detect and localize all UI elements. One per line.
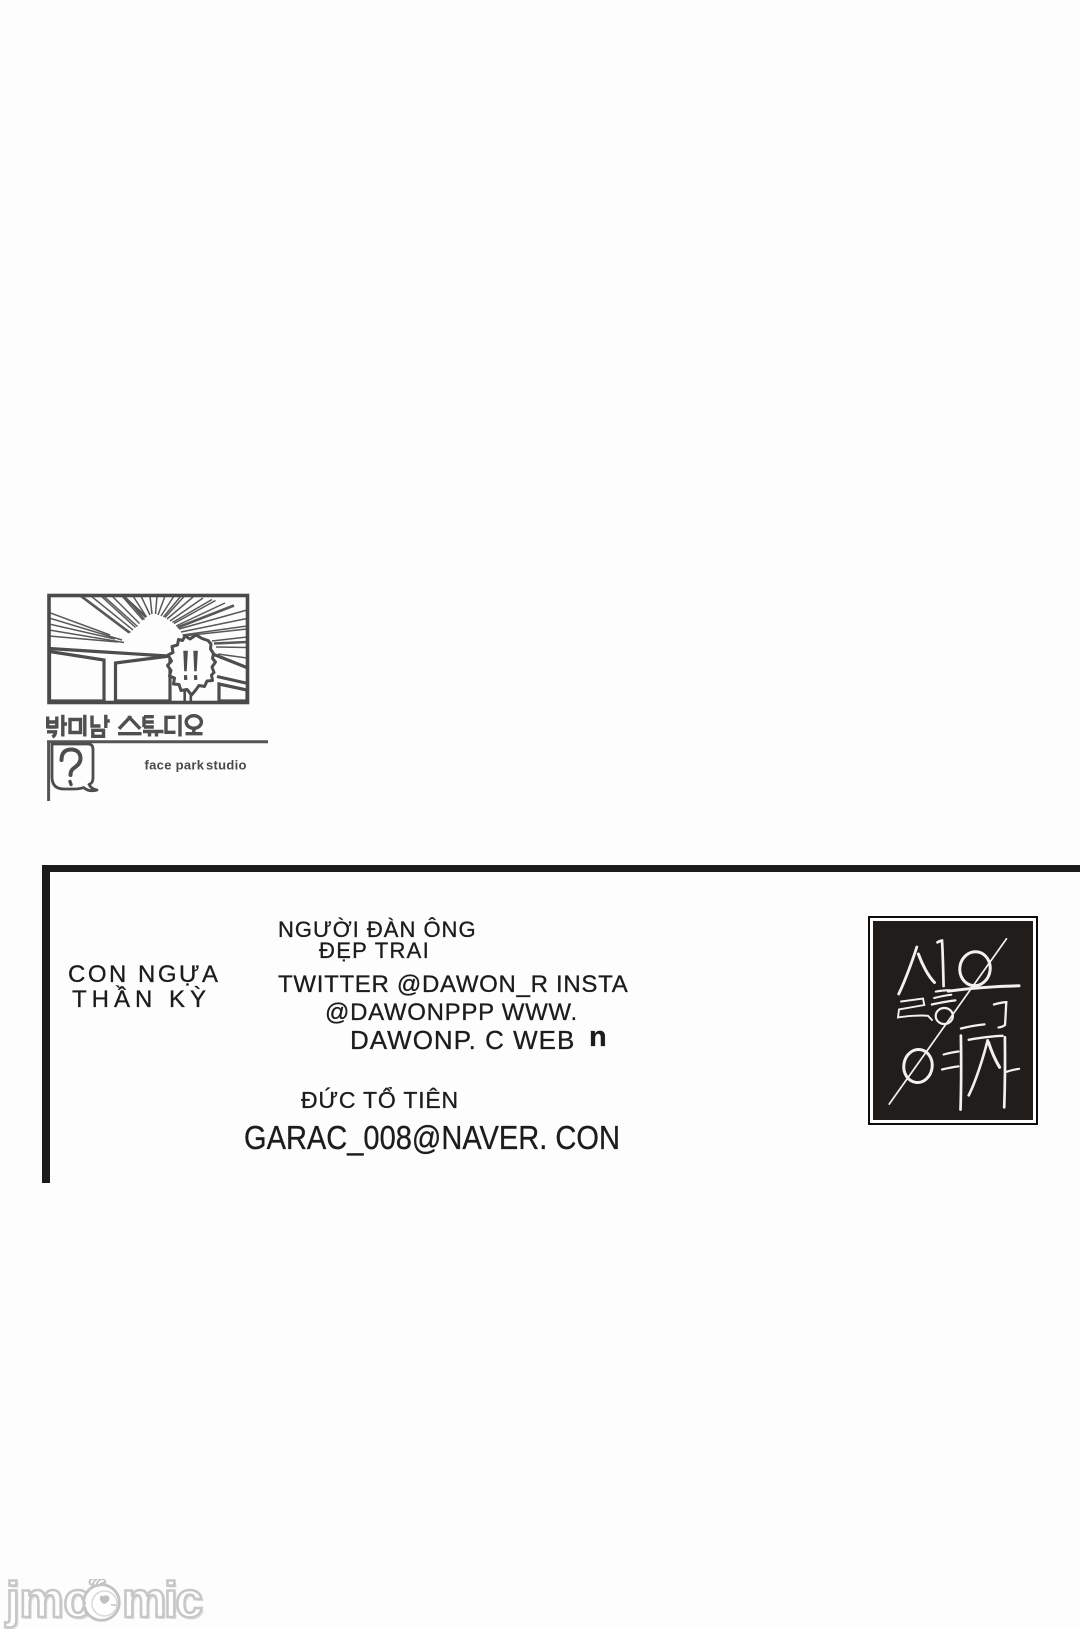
svg-text:studio: studio: [206, 758, 247, 773]
svg-text:face park: face park: [145, 758, 205, 773]
